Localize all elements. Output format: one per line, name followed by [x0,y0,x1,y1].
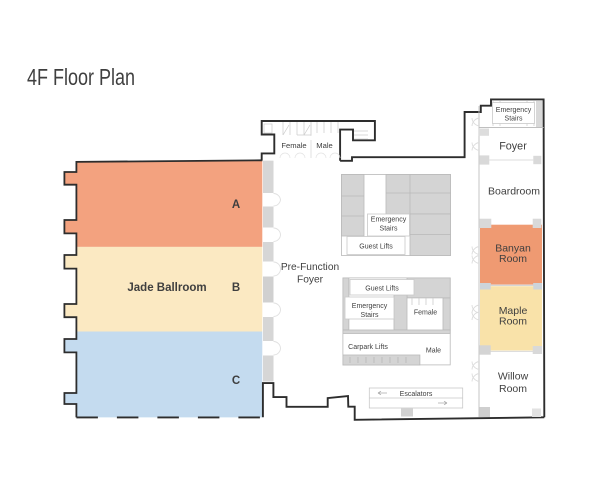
svg-text:Pre-Function: Pre-Function [281,262,339,273]
svg-text:Foyer: Foyer [499,140,527,152]
svg-text:Emergency: Emergency [371,217,407,224]
svg-text:Emergency: Emergency [352,303,388,310]
svg-text:Female: Female [414,310,437,317]
svg-text:Guest Lifts: Guest Lifts [359,244,393,251]
svg-text:Boardroom: Boardroom [488,186,540,198]
svg-text:Room: Room [499,253,527,265]
svg-text:A: A [232,199,240,211]
svg-text:Emergency: Emergency [496,107,532,114]
svg-text:Escalators: Escalators [400,391,433,398]
svg-text:Carpark Lifts: Carpark Lifts [348,344,388,351]
svg-text:Room: Room [499,383,527,395]
svg-text:Room: Room [499,315,527,327]
svg-text:B: B [232,282,240,294]
svg-text:Willow: Willow [498,371,529,383]
svg-text:Guest Lifts: Guest Lifts [365,286,399,293]
svg-text:Stairs: Stairs [505,116,523,123]
svg-text:Female: Female [281,141,306,150]
svg-text:Male: Male [426,348,441,355]
svg-text:Stairs: Stairs [361,312,379,319]
svg-text:Stairs: Stairs [380,226,398,233]
svg-text:Jade Ballroom: Jade Ballroom [127,282,206,294]
svg-text:Male: Male [316,141,332,150]
svg-text:4F Floor Plan: 4F Floor Plan [27,64,135,90]
svg-text:Foyer: Foyer [297,274,324,285]
svg-text:C: C [232,375,240,387]
